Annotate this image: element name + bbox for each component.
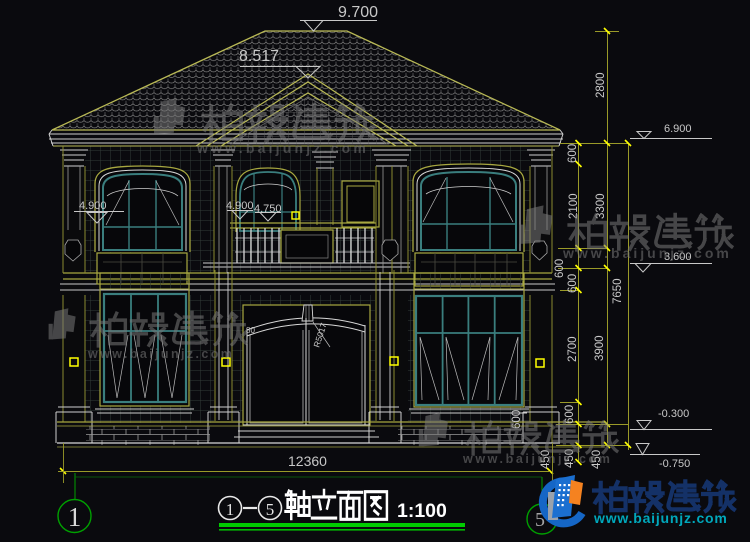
svg-text:1: 1 xyxy=(226,500,235,519)
svg-text:600: 600 xyxy=(567,144,579,163)
svg-text:5: 5 xyxy=(266,500,275,519)
svg-text:4.900: 4.900 xyxy=(79,200,107,212)
svg-text:2700: 2700 xyxy=(567,336,579,362)
svg-text:7650: 7650 xyxy=(612,278,624,304)
svg-text:1: 1 xyxy=(68,502,82,532)
svg-text:2800: 2800 xyxy=(595,72,607,98)
svg-text:www.baijunjz.com: www.baijunjz.com xyxy=(87,347,234,361)
svg-text:12360: 12360 xyxy=(288,453,327,469)
svg-text:600: 600 xyxy=(567,274,579,293)
svg-text:6.900: 6.900 xyxy=(664,123,692,135)
svg-text:4.900: 4.900 xyxy=(226,200,254,212)
svg-text:1:100: 1:100 xyxy=(397,500,447,522)
svg-text:www.baijunjz.com: www.baijunjz.com xyxy=(462,452,612,466)
svg-text:8.517: 8.517 xyxy=(239,48,279,65)
svg-text:www.baijunjz.com: www.baijunjz.com xyxy=(593,510,728,526)
svg-text:600: 600 xyxy=(554,259,566,278)
svg-text:4.750: 4.750 xyxy=(254,203,282,215)
svg-text:-0.750: -0.750 xyxy=(659,458,690,470)
svg-text:-0.300: -0.300 xyxy=(658,408,689,420)
svg-text:www.baijunjz.com: www.baijunjz.com xyxy=(562,245,732,261)
svg-text:80: 80 xyxy=(246,326,255,335)
svg-text:9.700: 9.700 xyxy=(338,4,378,21)
svg-text:www.baijunjz.com: www.baijunjz.com xyxy=(196,140,369,156)
svg-text:3900: 3900 xyxy=(594,335,606,361)
